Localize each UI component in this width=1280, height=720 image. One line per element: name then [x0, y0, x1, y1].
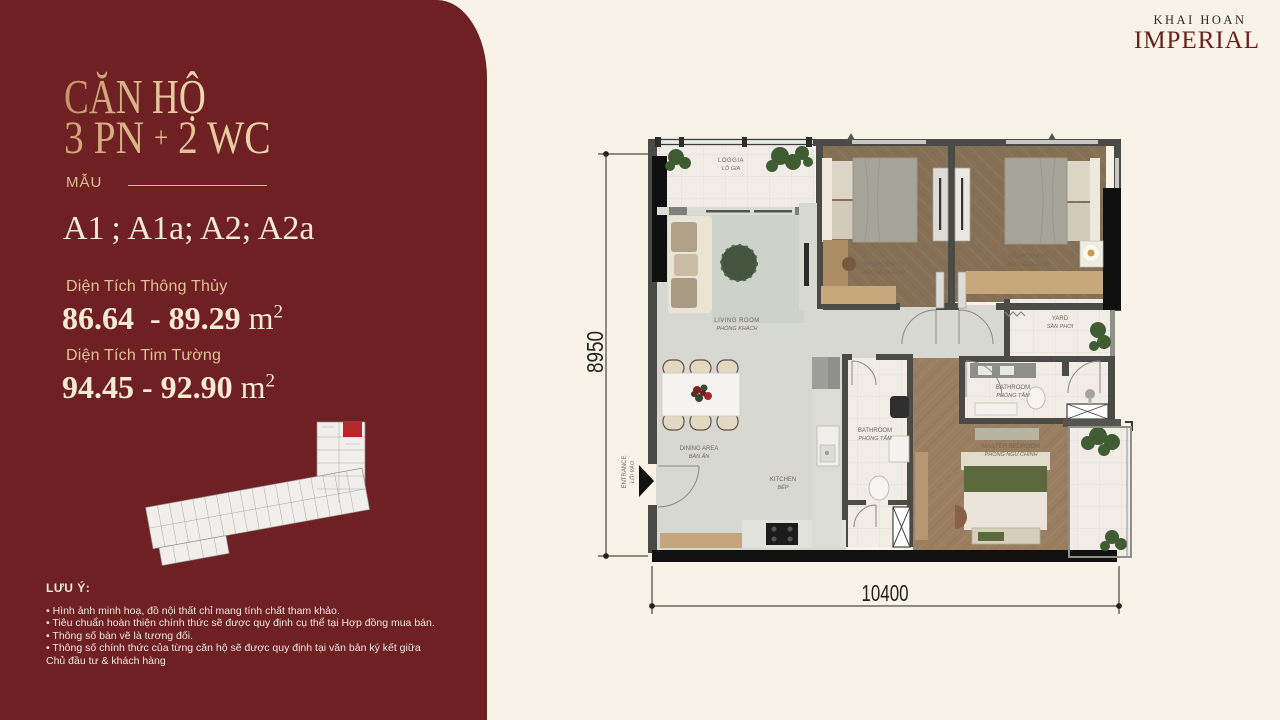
svg-text:SÂN PHƠI: SÂN PHƠI [1047, 323, 1074, 330]
svg-text:PHÒNG KHÁCH: PHÒNG KHÁCH [717, 325, 758, 332]
svg-text:KITCHEN: KITCHEN [770, 477, 796, 483]
svg-text:LOGGIA: LOGGIA [718, 158, 744, 164]
svg-text:LIVING ROOM: LIVING ROOM [714, 318, 760, 324]
svg-text:10400: 10400 [862, 580, 909, 606]
svg-text:PHÒNG NGỦ 03: PHÒNG NGỦ 03 [1007, 261, 1050, 268]
svg-text:BEDROOM 03: BEDROOM 03 [1008, 254, 1048, 260]
svg-text:BATHROOM: BATHROOM [858, 428, 892, 434]
svg-text:PHÒNG TẮM: PHÒNG TẮM [996, 391, 1030, 399]
svg-text:ENTRANCE: ENTRANCE [622, 455, 628, 488]
svg-text:YARD: YARD [1052, 316, 1069, 322]
svg-text:BÀN ĂN: BÀN ĂN [689, 453, 710, 460]
svg-text:PHÒNG TẮM: PHÒNG TẮM [858, 434, 892, 442]
svg-text:MASTER BEDROOM: MASTER BEDROOM [982, 444, 1040, 450]
svg-text:LÔ GIA: LÔ GIA [722, 165, 741, 172]
svg-text:DINING AREA: DINING AREA [680, 446, 719, 452]
svg-text:BEDROOM 02: BEDROOM 02 [864, 262, 904, 268]
svg-text:PHÒNG NGỦ CHÍNH: PHÒNG NGỦ CHÍNH [985, 451, 1038, 458]
svg-text:8950: 8950 [582, 331, 608, 373]
svg-text:PHÒNG NGỦ 02: PHÒNG NGỦ 02 [863, 269, 905, 276]
svg-text:BẾP: BẾP [777, 483, 788, 491]
svg-text:LỐI VÀO: LỐI VÀO [629, 460, 636, 483]
svg-text:BATHROOM: BATHROOM [996, 385, 1030, 391]
